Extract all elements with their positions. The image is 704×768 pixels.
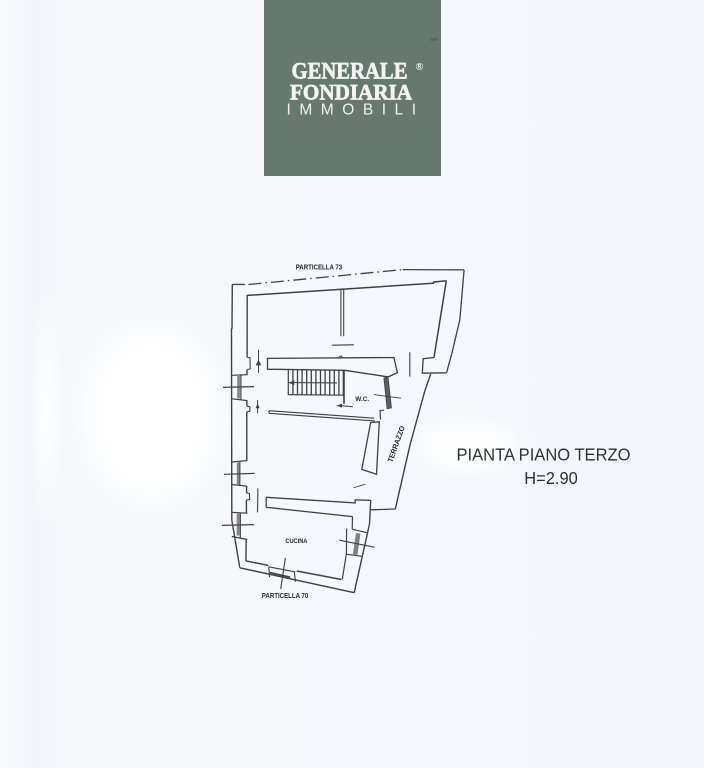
svg-text:W.C.: W.C. [355, 396, 369, 403]
svg-text:CUCINA: CUCINA [285, 538, 307, 545]
svg-text:PARTICELLA 70: PARTICELLA 70 [262, 591, 309, 600]
svg-text:TERRAZZO: TERRAZZO [386, 424, 407, 463]
svg-text:PIANTA PIANO TERZO: PIANTA PIANO TERZO [457, 444, 631, 464]
svg-text:PARTICELLA 73: PARTICELLA 73 [296, 262, 343, 271]
svg-text:H=2.90: H=2.90 [524, 468, 578, 488]
